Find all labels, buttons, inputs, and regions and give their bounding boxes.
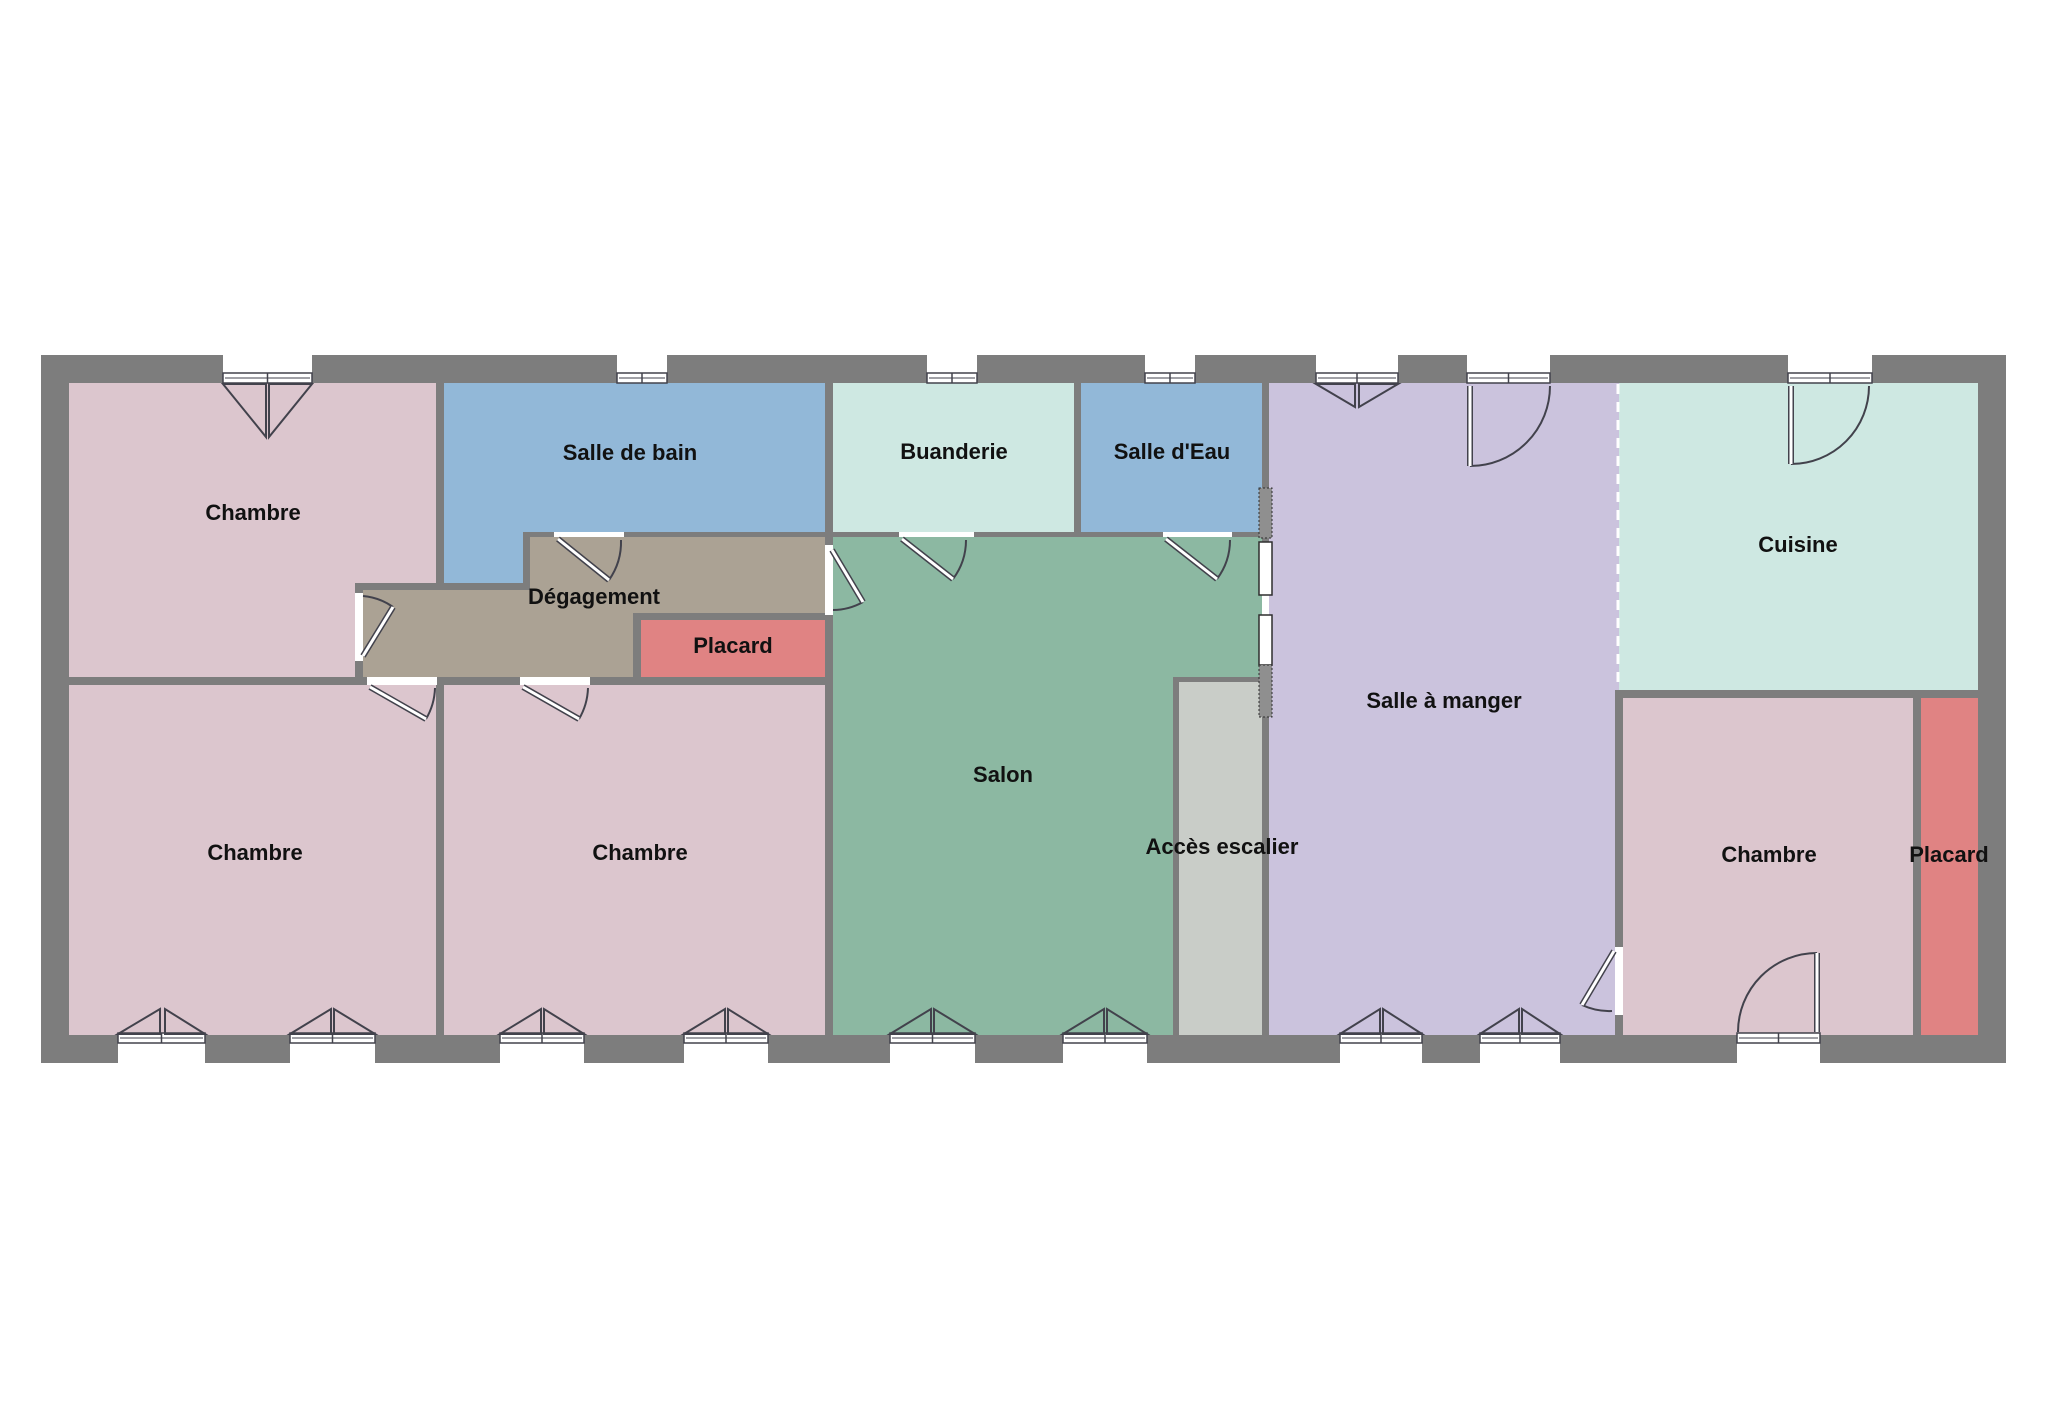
wall-opening-7 — [118, 1035, 205, 1063]
room-label-placard-gauche: Placard — [693, 633, 773, 659]
room-label-salle-de-bain: Salle de bain — [563, 440, 698, 466]
room-label-cuisine: Cuisine — [1758, 532, 1837, 558]
wall-opening-16 — [355, 593, 363, 661]
room-label-chambre-milieu: Chambre — [592, 840, 687, 866]
room-label-buanderie: Buanderie — [900, 439, 1008, 465]
room-label-acces-escalier: Accès escalier — [1146, 834, 1299, 860]
wall-opening-17 — [554, 532, 624, 537]
room-label-salle-d-eau: Salle d'Eau — [1114, 439, 1231, 465]
wall-opening-9 — [500, 1035, 584, 1063]
wall-opening-3 — [1145, 355, 1195, 383]
room-label-degagement: Dégagement — [528, 584, 660, 610]
room-label-salle-a-manger: Salle à manger — [1366, 688, 1521, 714]
room-label-salon: Salon — [973, 762, 1033, 788]
wall-opening-5 — [1467, 355, 1550, 383]
floor-plan-page: ChambreSalle de bainBuanderieSalle d'Eau… — [0, 0, 2048, 1417]
room-label-placard-droit: Placard — [1909, 842, 1989, 868]
room-degagement-2 — [363, 590, 530, 677]
room-chambre-tl-0 — [69, 383, 436, 583]
wall-opening-11 — [890, 1035, 975, 1063]
wall-opening-14 — [1480, 1035, 1560, 1063]
wall-opening-6 — [1788, 355, 1872, 383]
room-degagement-1 — [530, 613, 633, 677]
wall-opening-22 — [367, 677, 437, 685]
wall-opening-13 — [1340, 1035, 1422, 1063]
wall-opening-24 — [1262, 595, 1269, 615]
wall-opening-2 — [927, 355, 977, 383]
wall-opening-1 — [617, 355, 667, 383]
room-label-chambre-tl: Chambre — [205, 500, 300, 526]
wall-opening-20 — [1163, 532, 1232, 537]
wall-opening-10 — [684, 1035, 768, 1063]
wall-opening-4 — [1316, 355, 1398, 383]
wall-opening-18 — [825, 545, 833, 615]
wall-opening-21 — [1615, 947, 1623, 1015]
wall-opening-15 — [1737, 1035, 1820, 1063]
room-label-chambre-bl: Chambre — [207, 840, 302, 866]
wall-opening-8 — [290, 1035, 375, 1063]
wall-opening-23 — [520, 677, 590, 685]
room-salle-de-bain-1 — [444, 532, 523, 583]
wall-opening-0 — [223, 355, 312, 383]
wall-opening-19 — [899, 532, 974, 537]
room-chambre-tl-1 — [69, 583, 355, 677]
wall-opening-12 — [1063, 1035, 1147, 1063]
room-label-chambre-br: Chambre — [1721, 842, 1816, 868]
